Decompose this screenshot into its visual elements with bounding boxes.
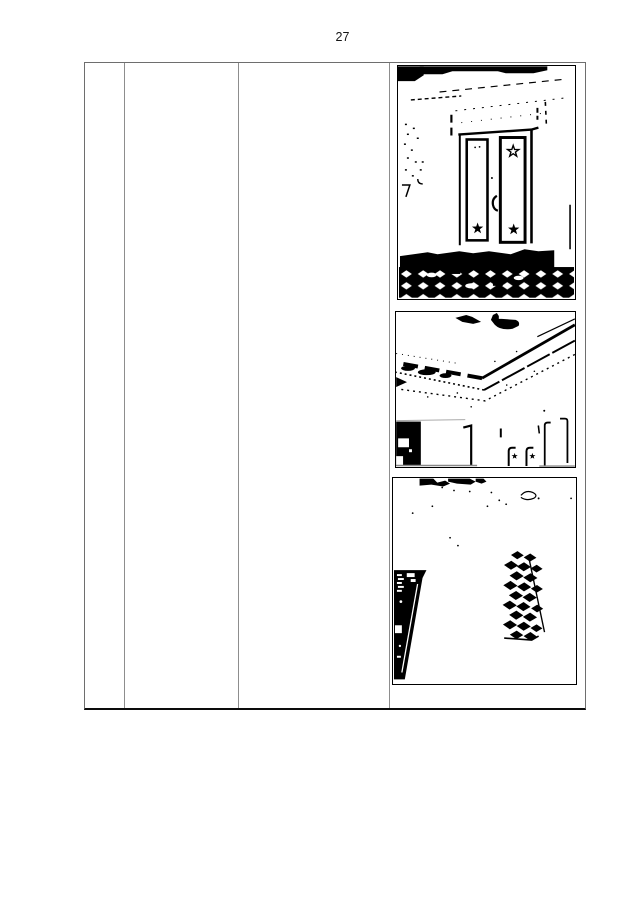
table-cell-2 bbox=[125, 63, 239, 708]
ceiling-cornice-image bbox=[396, 312, 575, 467]
content-table bbox=[84, 62, 586, 710]
table-cell-3 bbox=[239, 63, 390, 708]
page-number: 27 bbox=[0, 30, 640, 44]
table-cell-photos bbox=[390, 63, 585, 708]
table-cell-1 bbox=[85, 63, 125, 708]
ceiling-cornice-photo bbox=[395, 311, 576, 468]
star-doors-image bbox=[398, 66, 575, 299]
floor-runner-photo bbox=[392, 477, 577, 685]
star-doors-photo bbox=[397, 65, 576, 300]
floor-runner-image bbox=[393, 478, 576, 684]
document-page: { "page": { "number": "27", "background_… bbox=[0, 0, 640, 905]
